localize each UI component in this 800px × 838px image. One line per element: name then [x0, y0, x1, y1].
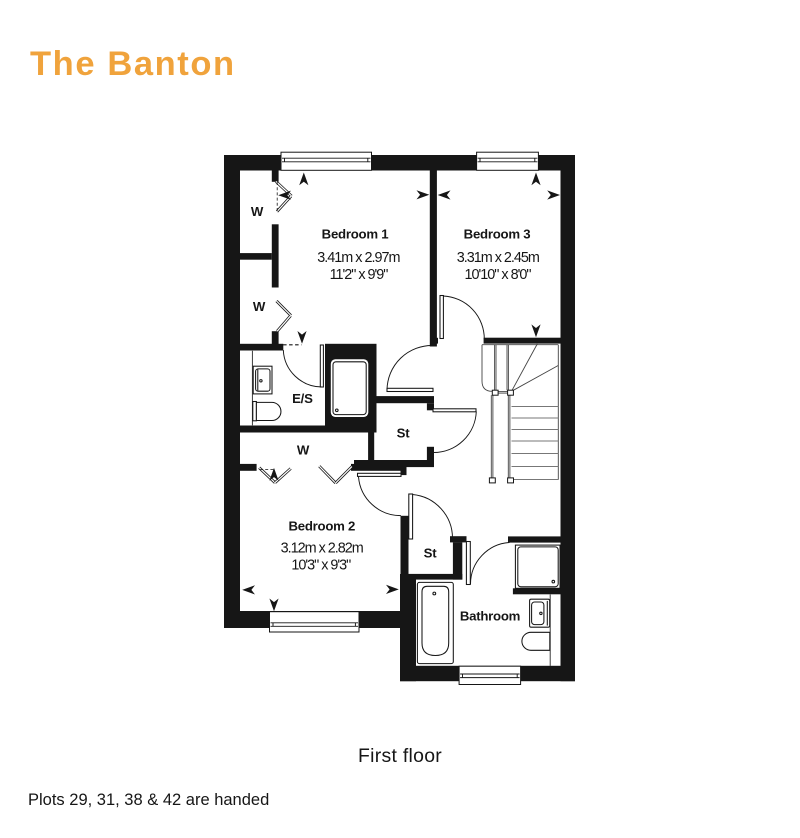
svg-text:3.41m x 2.97m: 3.41m x 2.97m — [317, 250, 400, 266]
svg-text:10'10" x 8'0": 10'10" x 8'0" — [465, 267, 532, 283]
svg-text:St: St — [397, 426, 411, 441]
svg-text:Bedroom 2: Bedroom 2 — [288, 518, 355, 533]
svg-text:Bathroom: Bathroom — [460, 608, 520, 623]
svg-text:3.31m x 2.45m: 3.31m x 2.45m — [457, 250, 540, 266]
svg-text:Bedroom 3: Bedroom 3 — [464, 227, 531, 242]
svg-text:10'3" x 9'3": 10'3" x 9'3" — [291, 558, 351, 574]
svg-text:Bedroom 1: Bedroom 1 — [322, 227, 389, 242]
svg-text:11'2" x 9'9": 11'2" x 9'9" — [330, 267, 389, 283]
svg-text:W: W — [297, 443, 310, 458]
svg-text:3.12m x 2.82m: 3.12m x 2.82m — [281, 540, 364, 556]
svg-text:E/S: E/S — [292, 391, 313, 406]
svg-text:W: W — [251, 204, 264, 219]
svg-text:St: St — [424, 546, 438, 561]
svg-text:W: W — [253, 299, 266, 314]
